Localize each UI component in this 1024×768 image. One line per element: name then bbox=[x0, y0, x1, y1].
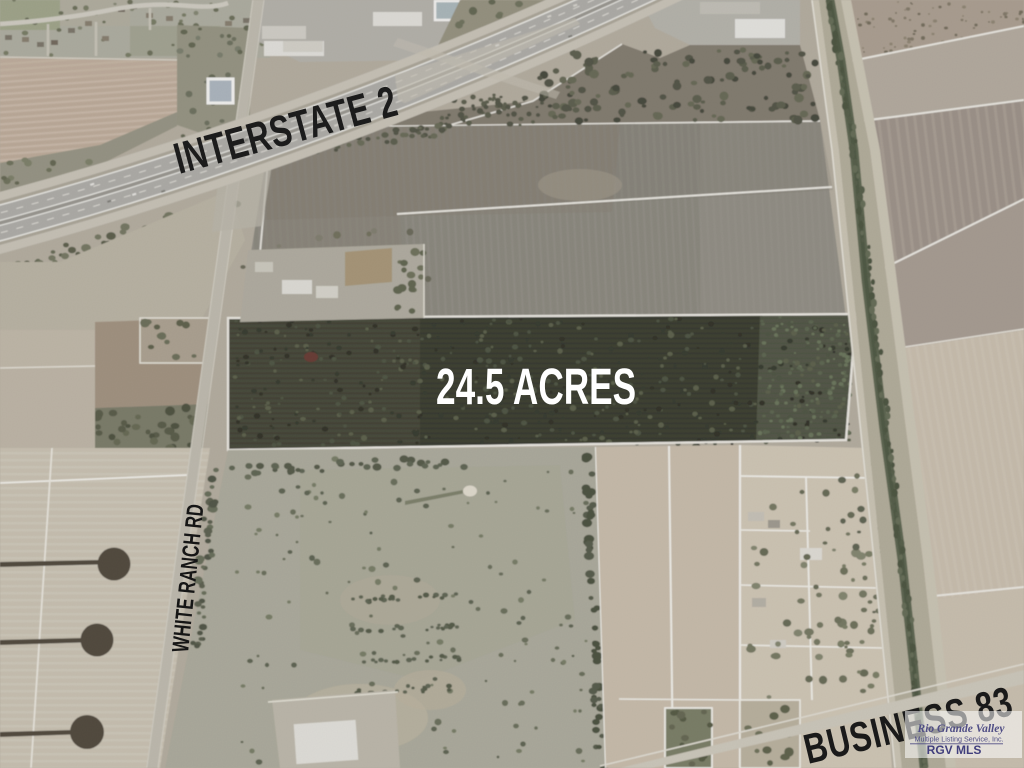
svg-text:RGV MLS: RGV MLS bbox=[927, 743, 982, 757]
svg-text:24.5 ACRES: 24.5 ACRES bbox=[436, 359, 636, 416]
svg-text:Rio Grande Valley: Rio Grande Valley bbox=[917, 723, 1006, 735]
